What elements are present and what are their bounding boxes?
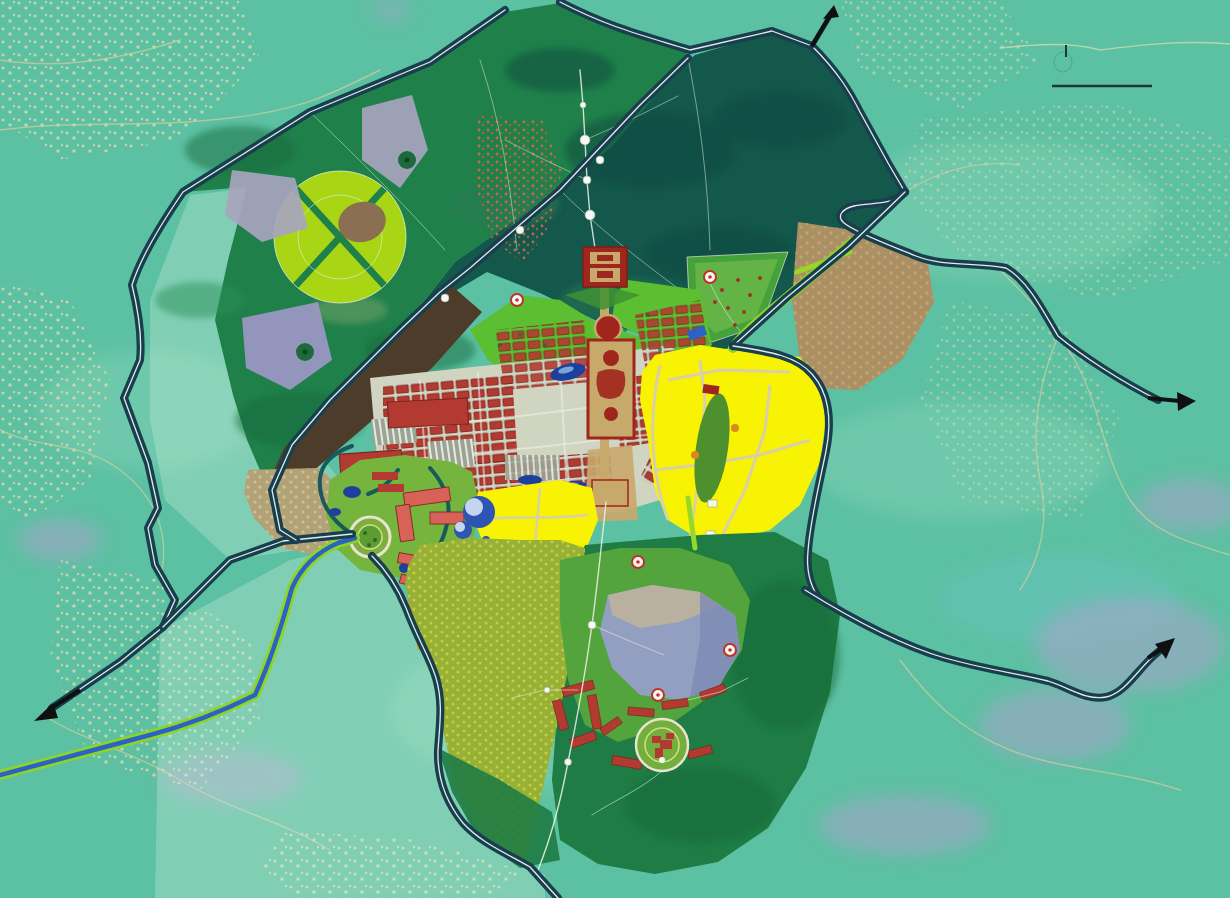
marker — [511, 294, 523, 306]
map-canvas — [0, 0, 1230, 898]
temple-complex — [583, 247, 627, 287]
marker — [632, 556, 644, 568]
master-plan-map — [0, 0, 1230, 898]
axis-courtyard-complex — [588, 340, 634, 438]
marker — [652, 689, 664, 701]
axis-circular-plaza — [595, 315, 621, 341]
south-plaza — [636, 719, 688, 771]
axis-south-gate — [592, 480, 628, 506]
marker — [724, 644, 736, 656]
